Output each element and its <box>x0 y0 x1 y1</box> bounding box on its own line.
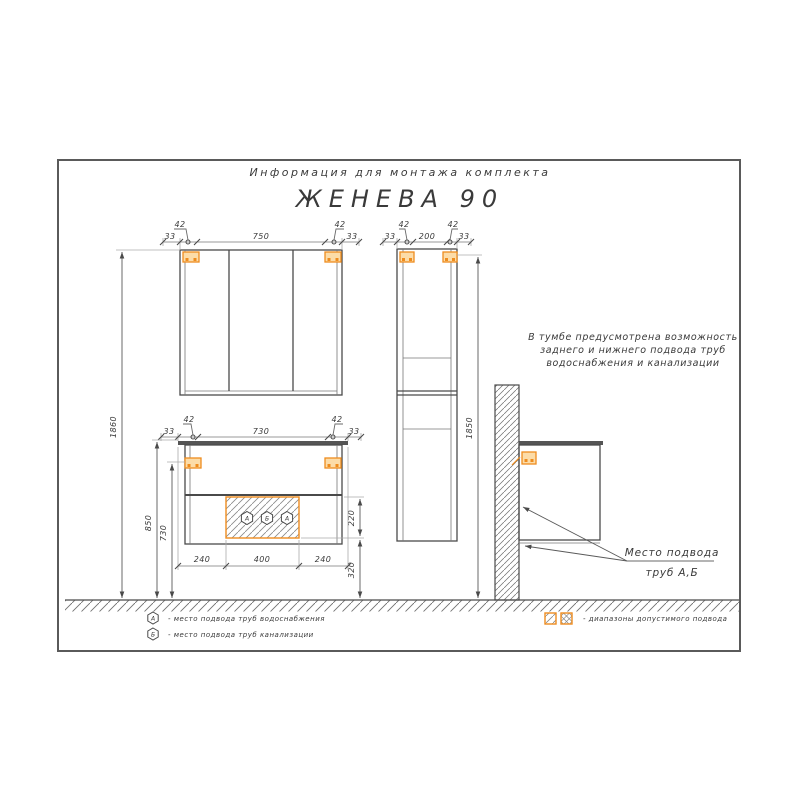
tall-cabinet-view: 42 42 33 200 33 1850 <box>380 220 482 598</box>
water-port-icon: А <box>148 612 158 624</box>
floor-line <box>65 600 739 612</box>
drawing-canvas: Информация для монтажа комплекта ЖЕНЕВА … <box>0 0 800 800</box>
port-letter: А <box>244 515 249 522</box>
note-text: В тумбе предусмотрена возможность заднег… <box>528 332 738 369</box>
legend-zones: - диапазоны допустимого подвода <box>545 613 727 624</box>
note-line-3: водоснабжения и канализации <box>546 358 719 369</box>
mounting-bracket-icon <box>325 458 341 468</box>
drawing-frame <box>58 160 740 651</box>
dim-label-42: 42 <box>332 415 343 424</box>
dim-label-400: 400 <box>254 555 270 564</box>
dim-label-42: 42 <box>175 220 186 229</box>
mounting-bracket-icon <box>185 458 201 468</box>
title-block: Информация для монтажа комплекта ЖЕНЕВА … <box>249 166 550 213</box>
dim-label-1860: 1860 <box>109 416 118 438</box>
sewer-port-icon: Б <box>148 628 158 640</box>
port-letter: А <box>284 515 289 522</box>
pipe-port-water-icon: А <box>241 512 252 525</box>
dim-label-42: 42 <box>335 220 346 229</box>
pipes-callout: Место подвода труб А,Б <box>625 547 719 579</box>
water-symbol: А <box>150 615 155 622</box>
legend-sewer-text: - место подвода труб канализации <box>168 631 314 639</box>
legend-water-text: - место подвода труб водоснабжения <box>168 615 325 623</box>
pipe-port-sewer-icon: Б <box>261 512 272 525</box>
wall-section <box>495 385 519 600</box>
dim-label-750: 750 <box>253 232 269 241</box>
side-view: Место подвода труб А,Б <box>495 385 719 600</box>
note-line-2: заднего и нижнего подвода труб <box>540 345 726 356</box>
cross-hatch-zone-icon <box>561 613 572 624</box>
vanity-view: А Б А 42 42 33 730 33 850 730 220 320 <box>144 415 364 598</box>
legend-zones-text: - диапазоны допустимого подвода <box>583 615 727 623</box>
pipes-callout-line-1: Место подвода <box>625 547 719 559</box>
dim-label-240: 240 <box>315 555 331 564</box>
dim-label-42: 42 <box>448 220 459 229</box>
mounting-bracket-icon <box>183 252 199 262</box>
legend-sewer: Б - место подвода труб канализации <box>148 628 314 640</box>
dim-label-42: 42 <box>399 220 410 229</box>
dim-label-240: 240 <box>194 555 210 564</box>
mounting-bracket-icon <box>522 452 536 464</box>
pipe-port-water-icon: А <box>281 512 292 525</box>
dim-label-33: 33 <box>347 232 358 241</box>
dim-label-42: 42 <box>184 415 195 424</box>
sewer-symbol: Б <box>151 631 155 638</box>
mirror-door-dividers <box>229 250 293 391</box>
dim-label-730: 730 <box>253 427 269 436</box>
product-title: ЖЕНЕВА 90 <box>294 185 504 213</box>
mounting-bracket-icon <box>443 252 457 262</box>
pipes-callout-line-2: труб А,Б <box>646 567 699 579</box>
dim-label-33: 33 <box>165 232 176 241</box>
dim-label-200: 200 <box>419 232 435 241</box>
port-letter: Б <box>265 515 269 522</box>
mirror-body <box>180 250 342 395</box>
note-line-1: В тумбе предусмотрена возможность <box>528 332 738 343</box>
dim-label-33: 33 <box>459 232 470 241</box>
installation-drawing: Информация для монтажа комплекта ЖЕНЕВА … <box>0 0 800 800</box>
diagonal-hatch-zone-icon <box>545 613 556 624</box>
drawing-subtitle: Информация для монтажа комплекта <box>249 166 550 179</box>
mounting-bracket-icon <box>400 252 414 262</box>
legend-water: А - место подвода труб водоснабжения <box>148 612 325 624</box>
dim-label-33: 33 <box>385 232 396 241</box>
dim-label-1850: 1850 <box>465 417 474 439</box>
mirror-cabinet-view: 42 42 33 750 33 1860 <box>109 220 362 598</box>
dim-label-730-height: 730 <box>159 525 168 541</box>
dim-label-33: 33 <box>164 427 175 436</box>
dim-label-33: 33 <box>349 427 360 436</box>
mounting-bracket-icon <box>325 252 341 262</box>
dim-label-850: 850 <box>144 515 153 531</box>
